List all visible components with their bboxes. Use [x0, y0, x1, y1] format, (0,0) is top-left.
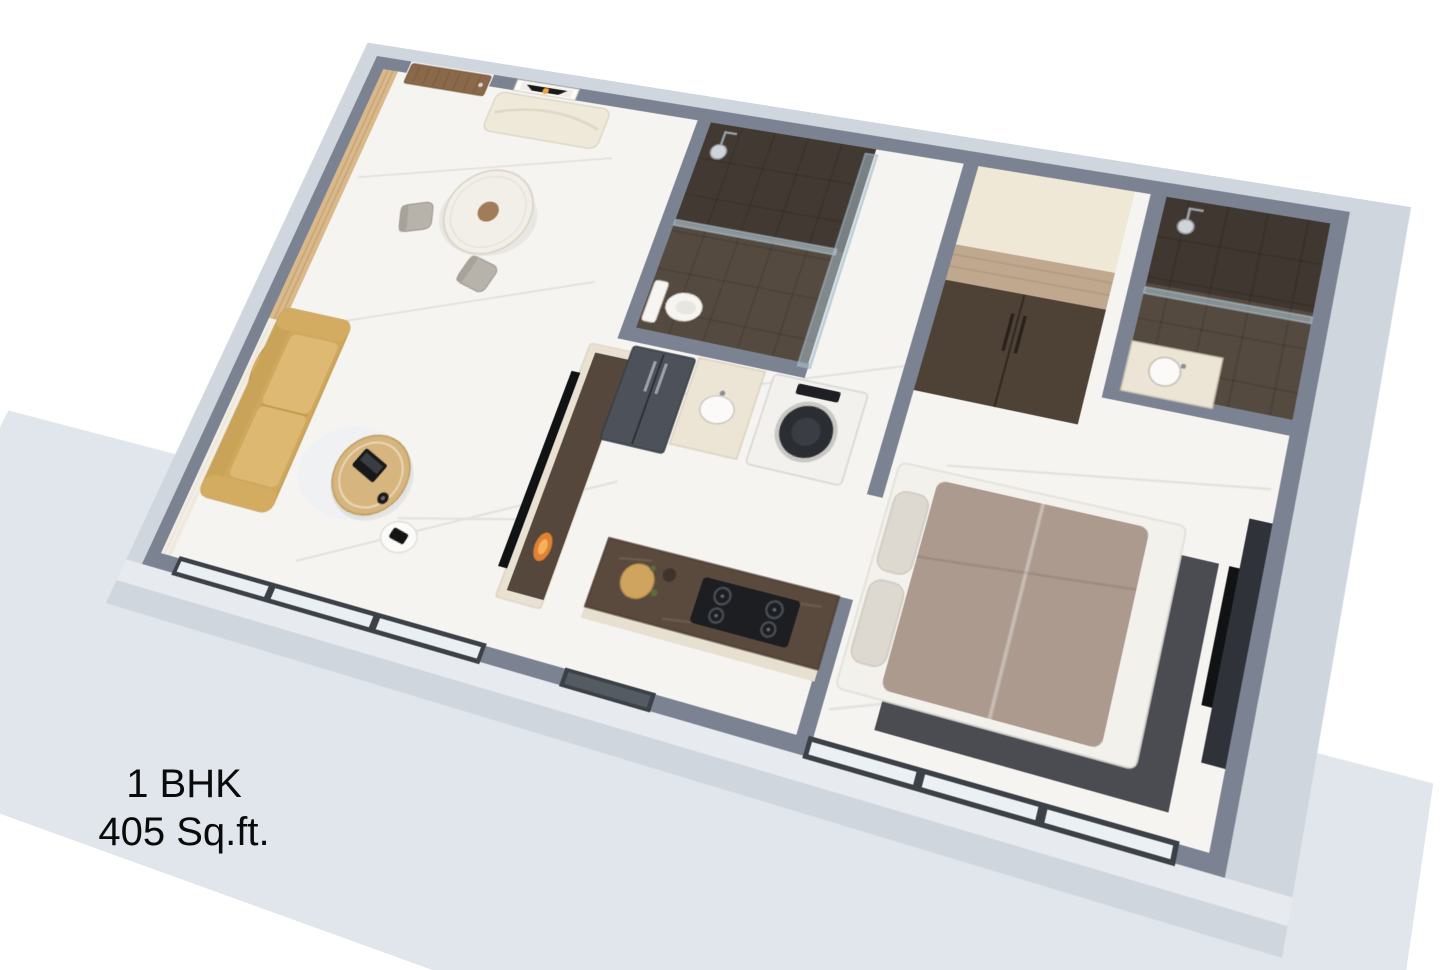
- area-label: 405 Sq.ft.: [84, 808, 284, 856]
- unit-type-label: 1 BHK: [84, 760, 284, 808]
- floorplan-scene: 1 BHK 405 Sq.ft.: [0, 0, 1440, 970]
- apartment-3d-plan: [142, 56, 1350, 878]
- plan-label: 1 BHK 405 Sq.ft.: [84, 760, 284, 856]
- dining-chair-left: [398, 202, 433, 233]
